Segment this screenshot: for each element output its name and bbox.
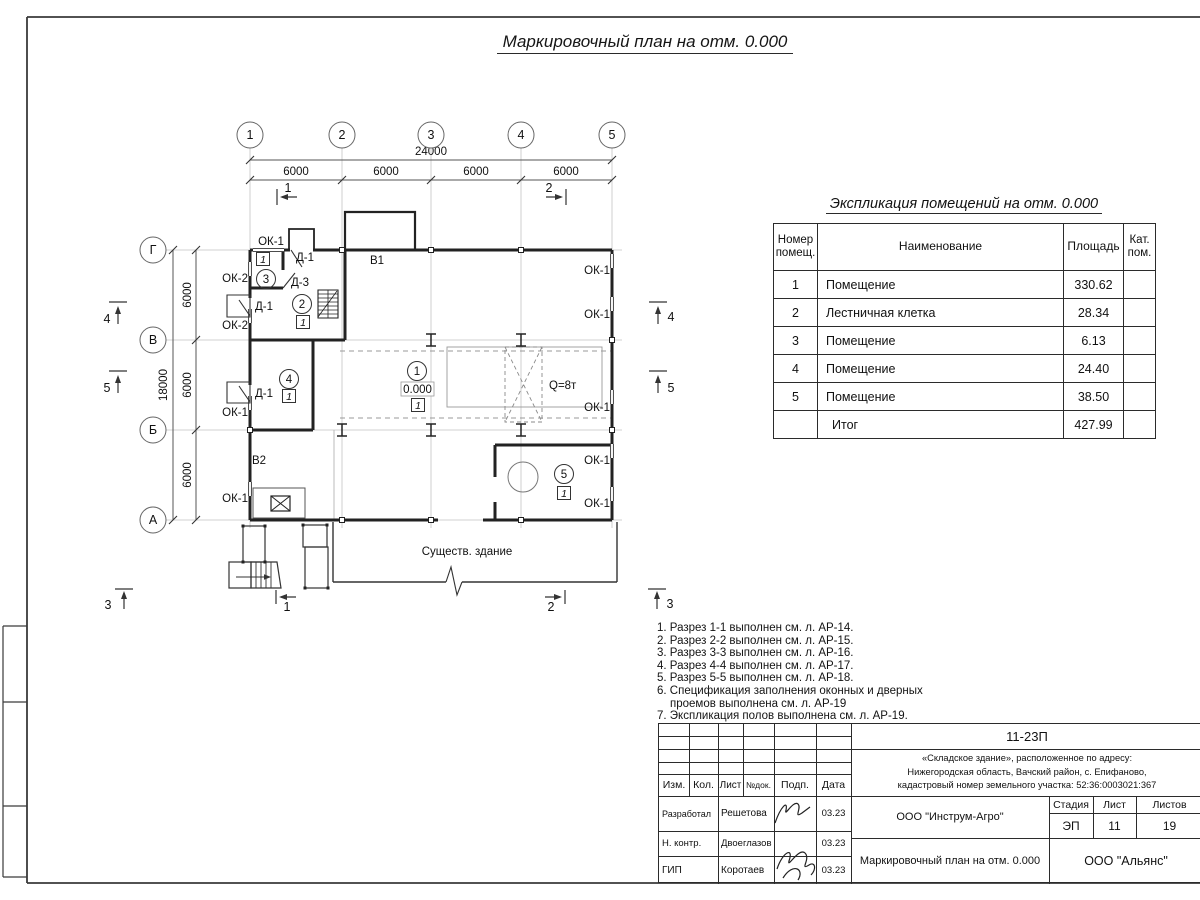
col-kol: Кол. — [689, 774, 718, 796]
room-number: 2 — [299, 299, 305, 311]
company-name: ООО "Альянс" — [1049, 838, 1200, 884]
axis-label-1: 1 — [247, 128, 254, 142]
sheets-label: Листов — [1136, 796, 1200, 813]
role-name: Двоеглазов — [718, 831, 774, 856]
table-row: 5 Помещение 38.50 — [774, 383, 1156, 411]
note-line: 2. Разрез 2-2 выполнен см. л. АР-15. — [657, 635, 987, 648]
signature-mark — [775, 803, 810, 823]
dim-bay: 6000 — [182, 282, 194, 308]
stage-label: Стадия — [1049, 796, 1093, 813]
window-label: ОК-1 — [584, 265, 610, 277]
section-label: 4 — [104, 312, 111, 326]
floor-type-mark: 1 — [415, 400, 421, 412]
sheets-value: 19 — [1136, 813, 1200, 838]
col-header-area: Площадь — [1064, 224, 1124, 271]
axis-label-b: Б — [149, 423, 157, 437]
sheet-label: Лист — [1093, 796, 1136, 813]
window-label: ОК-1 — [584, 455, 610, 467]
window-label: ОК-1 — [584, 402, 610, 414]
floor-type-mark: 1 — [260, 254, 266, 266]
note-line: 5. Разрез 5-5 выполнен см. л. АР-18. — [657, 672, 987, 685]
axis-label-4: 4 — [518, 128, 525, 142]
section-label: 5 — [104, 381, 111, 395]
sheet-value: 11 — [1093, 813, 1136, 838]
door-label: Д-1 — [255, 388, 273, 400]
level-value: 0.000 — [403, 384, 432, 396]
window-label: ОК-1 — [258, 236, 284, 248]
dimension-labels: 24000 6000 6000 6000 6000 18000 6000 600… — [158, 146, 579, 488]
stairs-icon — [318, 290, 338, 318]
section-label: 4 — [668, 310, 675, 324]
annotation-labels: ОК-1 ОК-2 ОК-2 ОК-1 ОК-1 ОК-1 ОК-1 ОК-1 … — [222, 236, 610, 558]
room-schedule: Экспликация помещений на отм. 0.000 Номе… — [773, 196, 1155, 439]
design-org: ООО "Инструм-Агро" — [851, 796, 1049, 838]
axis-label-a: А — [149, 513, 158, 527]
col-header-cat: Кат. пом. — [1124, 224, 1156, 271]
stage-value: ЭП — [1049, 813, 1093, 838]
room-schedule-table: Номер помещ. Наименование Площадь Кат. п… — [773, 223, 1156, 439]
section-label: 5 — [668, 381, 675, 395]
col-header-name: Наименование — [818, 224, 1064, 271]
note-line: 3. Разрез 3-3 выполнен см. л. АР-16. — [657, 647, 987, 660]
col-header-num: Номер помещ. — [774, 224, 818, 271]
dim-bay: 6000 — [463, 166, 489, 178]
dim-bay: 6000 — [283, 166, 309, 178]
dim-bay: 6000 — [182, 372, 194, 398]
section-label: 2 — [546, 181, 553, 195]
section-label: 3 — [667, 597, 674, 611]
project-description: «Складское здание», расположенное по адр… — [851, 749, 1200, 796]
table-row: 1 Помещение 330.62 — [774, 271, 1156, 299]
room-number: 4 — [286, 374, 293, 386]
dim-bay: 6000 — [182, 462, 194, 488]
signatures — [771, 796, 821, 884]
role-name: Решетова — [718, 796, 774, 831]
window-label: ОК-1 — [222, 493, 248, 505]
section-label: 2 — [548, 600, 555, 614]
role-date: 03.23 — [816, 796, 851, 831]
axis-label-v: В — [149, 333, 157, 347]
drawing-sheet: 24000 6000 6000 6000 6000 18000 6000 600… — [0, 0, 1200, 900]
floor-type-mark: 1 — [561, 488, 567, 500]
window-label: ОК-2 — [222, 273, 248, 285]
section-label: 3 — [105, 598, 112, 612]
window-label: ОК-1 — [584, 498, 610, 510]
axis-label-g: Г — [150, 243, 157, 257]
signature-mark — [777, 852, 815, 880]
notes-list: 1. Разрез 1-1 выполнен см. л. АР-14. 2. … — [657, 622, 987, 723]
room-markers: 1 2 3 4 5 1 1 1 1 1 — [257, 253, 574, 501]
vent-label: В1 — [370, 255, 384, 267]
room-number: 3 — [263, 274, 269, 286]
col-podp: Подп. — [774, 774, 816, 796]
note-line: 7. Экспликация полов выполнена см. л. АР… — [657, 710, 987, 723]
note-line: 4. Разрез 4-4 выполнен см. л. АР-17. — [657, 660, 987, 673]
dim-bay: 6000 — [553, 166, 579, 178]
page-title-text: Маркировочный план на отм. 0.000 — [497, 32, 794, 54]
col-ndok: №док. — [743, 774, 774, 796]
section-label: 1 — [284, 600, 291, 614]
table-total-row: Итог 427.99 — [774, 411, 1156, 439]
dim-bay: 6000 — [373, 166, 399, 178]
window-label: ОК-1 — [222, 407, 248, 419]
room-schedule-title: Экспликация помещений на отм. 0.000 — [773, 196, 1155, 214]
title-block: Изм. Кол. Лист №док. Подп. Дата Разработ… — [658, 723, 1200, 883]
section-label: 1 — [285, 181, 292, 195]
col-izm: Изм. — [659, 774, 689, 796]
table-row: 2 Лестничная клетка 28.34 — [774, 299, 1156, 327]
window-label: ОК-1 — [584, 309, 610, 321]
axis-grid — [166, 148, 622, 528]
table-row: 4 Помещение 24.40 — [774, 355, 1156, 383]
table-header-row: Номер помещ. Наименование Площадь Кат. п… — [774, 224, 1156, 271]
crane-capacity-label: Q=8т — [549, 380, 577, 392]
window-label: ОК-2 — [222, 320, 248, 332]
role-label: Н. контр. — [659, 831, 718, 856]
role-label: ГИП — [659, 856, 718, 884]
axis-label-3: 3 — [428, 128, 435, 142]
porches — [229, 524, 330, 590]
floor-type-mark: 1 — [300, 317, 306, 329]
role-date: 03.23 — [816, 831, 851, 856]
door-label: Д-1 — [255, 301, 273, 313]
door-label: Д-1 — [296, 252, 314, 264]
role-name: Коротаев — [718, 856, 774, 884]
axis-label-5: 5 — [609, 128, 616, 142]
note-line: проемов выполнена см. л. АР-19 — [657, 698, 987, 711]
role-date: 03.23 — [816, 856, 851, 884]
existing-building — [333, 522, 617, 595]
room-number: 1 — [414, 366, 420, 378]
axis-label-2: 2 — [339, 128, 346, 142]
table-row: 3 Помещение 6.13 — [774, 327, 1156, 355]
project-code: 11-23П — [851, 724, 1200, 749]
floor-type-mark: 1 — [286, 391, 292, 403]
door-label: Д-3 — [291, 277, 309, 289]
sheet-title: Маркировочный план на отм. 0.000 — [851, 838, 1049, 884]
col-data: Дата — [816, 774, 851, 796]
note-line: 1. Разрез 1-1 выполнен см. л. АР-14. — [657, 622, 987, 635]
existing-building-label: Существ. здание — [422, 546, 513, 558]
vent-label: В2 — [252, 455, 266, 467]
note-line: 6. Спецификация заполнения оконных и две… — [657, 685, 987, 698]
dim-total-left: 18000 — [158, 369, 170, 401]
col-list: Лист — [718, 774, 743, 796]
page-title: Маркировочный план на отм. 0.000 — [445, 32, 845, 54]
level-mark: 0.000 — [401, 382, 434, 396]
room-number: 5 — [561, 469, 567, 481]
role-label: Разработал — [659, 796, 718, 831]
